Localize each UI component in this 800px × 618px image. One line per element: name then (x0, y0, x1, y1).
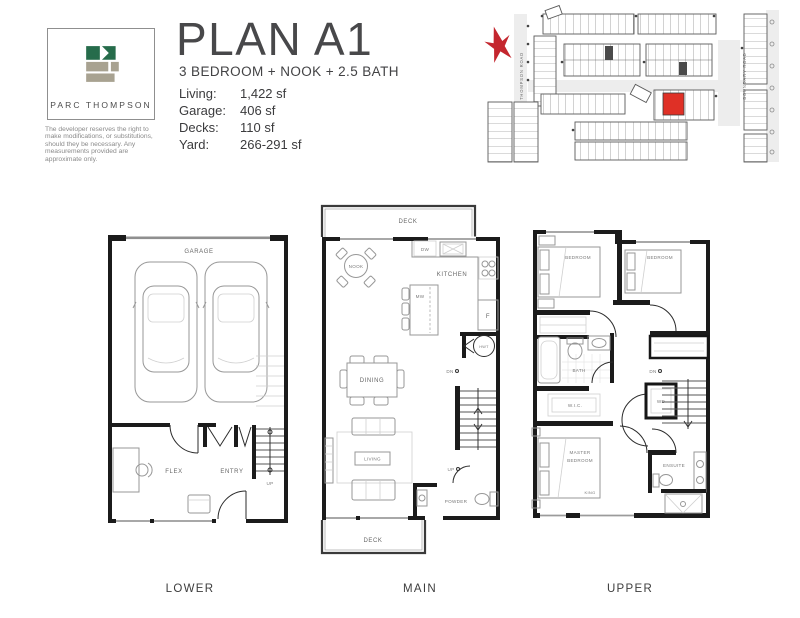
parc-thompson-logo-icon (84, 44, 122, 84)
room-label-ensuite: ENSUITE (663, 463, 685, 468)
stat-row: Decks:110 sf (179, 119, 301, 136)
master-bed (532, 428, 600, 508)
linen-closet (650, 336, 708, 358)
bench (188, 495, 210, 513)
bath-fixtures (538, 336, 610, 383)
floor-label-lower: LOWER (130, 583, 250, 595)
stair-label-dn: DN (649, 369, 656, 374)
appliance-label-hwt: HWT (479, 345, 489, 349)
room-label-powder: POWDER (445, 499, 468, 504)
room-label-bedroom-left: BEDROOM (565, 255, 591, 260)
floorplan-lower: GARAGE FLEX ENTRY UP (104, 226, 292, 532)
plan-subtitle: 3 BEDROOM + NOOK + 2.5 BATH (179, 64, 399, 79)
side-steps (256, 356, 284, 406)
disclaimer-text: The developer reserves the right to make… (45, 126, 159, 163)
area-stats: Living:1,422 sf Garage:406 sf Decks:110 … (179, 85, 301, 153)
room-label-kitchen: KITCHEN (437, 272, 468, 278)
deck-top-label: DECK (398, 219, 417, 225)
stair-label-up: UP (267, 481, 274, 486)
room-label-entry: ENTRY (220, 469, 243, 475)
road-label-thompson: THOMPSON ROAD (519, 52, 524, 100)
appliance-label-mw: MW (416, 294, 425, 299)
stairs-up (256, 427, 284, 475)
garage-door (126, 237, 270, 240)
bed-left (538, 236, 600, 308)
floorplan-upper: BEDROOM BEDROOM BATH W.I.C. WD (522, 224, 716, 524)
floor-label-main: MAIN (360, 583, 480, 595)
desk (113, 448, 152, 492)
brochure-page: { "header": { "logo_name": "PARC THOMPSO… (0, 0, 800, 618)
closet-bifold-icon (208, 427, 232, 446)
kitchen-island (402, 285, 438, 335)
site-map: THOMPSON ROAD BOUNDARY ROAD (476, 4, 796, 169)
room-label-bath: BATH (572, 368, 585, 373)
logo-box: PARC THOMPSON (47, 28, 155, 120)
compass-north-icon (481, 23, 515, 64)
stat-row: Living:1,422 sf (179, 85, 301, 102)
stairs (460, 388, 496, 450)
room-label-garage: GARAGE (184, 249, 213, 255)
stair-label-dn: DN (446, 369, 453, 374)
room-label-bedroom-right: BEDROOM (647, 255, 673, 260)
room-label-master-2: BEDROOM (567, 458, 593, 463)
deck-bottom-label: DECK (363, 538, 382, 544)
appliance-label-f: F (486, 314, 490, 320)
logo-name: PARC THOMPSON (48, 100, 154, 110)
floor-label-upper: UPPER (570, 583, 690, 595)
room-label-living: LIVING (364, 457, 381, 462)
bed-label-king: KING (585, 490, 596, 495)
stat-row: Garage:406 sf (179, 102, 301, 119)
stair-label-up: UP (448, 467, 455, 472)
appliance-label-wd: WD (657, 399, 666, 404)
stat-row: Yard:266-291 sf (179, 136, 301, 153)
room-label-dining: DINING (360, 378, 385, 384)
road-label-boundary: BOUNDARY ROAD (742, 52, 747, 99)
closet-bifold-icon (239, 427, 251, 446)
room-label-wic: W.I.C. (568, 403, 582, 408)
page-title: PLAN A1 (176, 16, 373, 62)
room-label-nook: NOOK (349, 264, 364, 269)
highlighted-unit (663, 93, 684, 115)
floorplan-main: DECK NOOK DW KITCHEN MW F HWT (316, 196, 506, 560)
room-label-master-1: MASTER (570, 450, 591, 455)
appliance-label-dw: DW (421, 247, 430, 252)
room-label-flex: FLEX (165, 469, 182, 475)
ensuite-fixtures (653, 452, 706, 513)
